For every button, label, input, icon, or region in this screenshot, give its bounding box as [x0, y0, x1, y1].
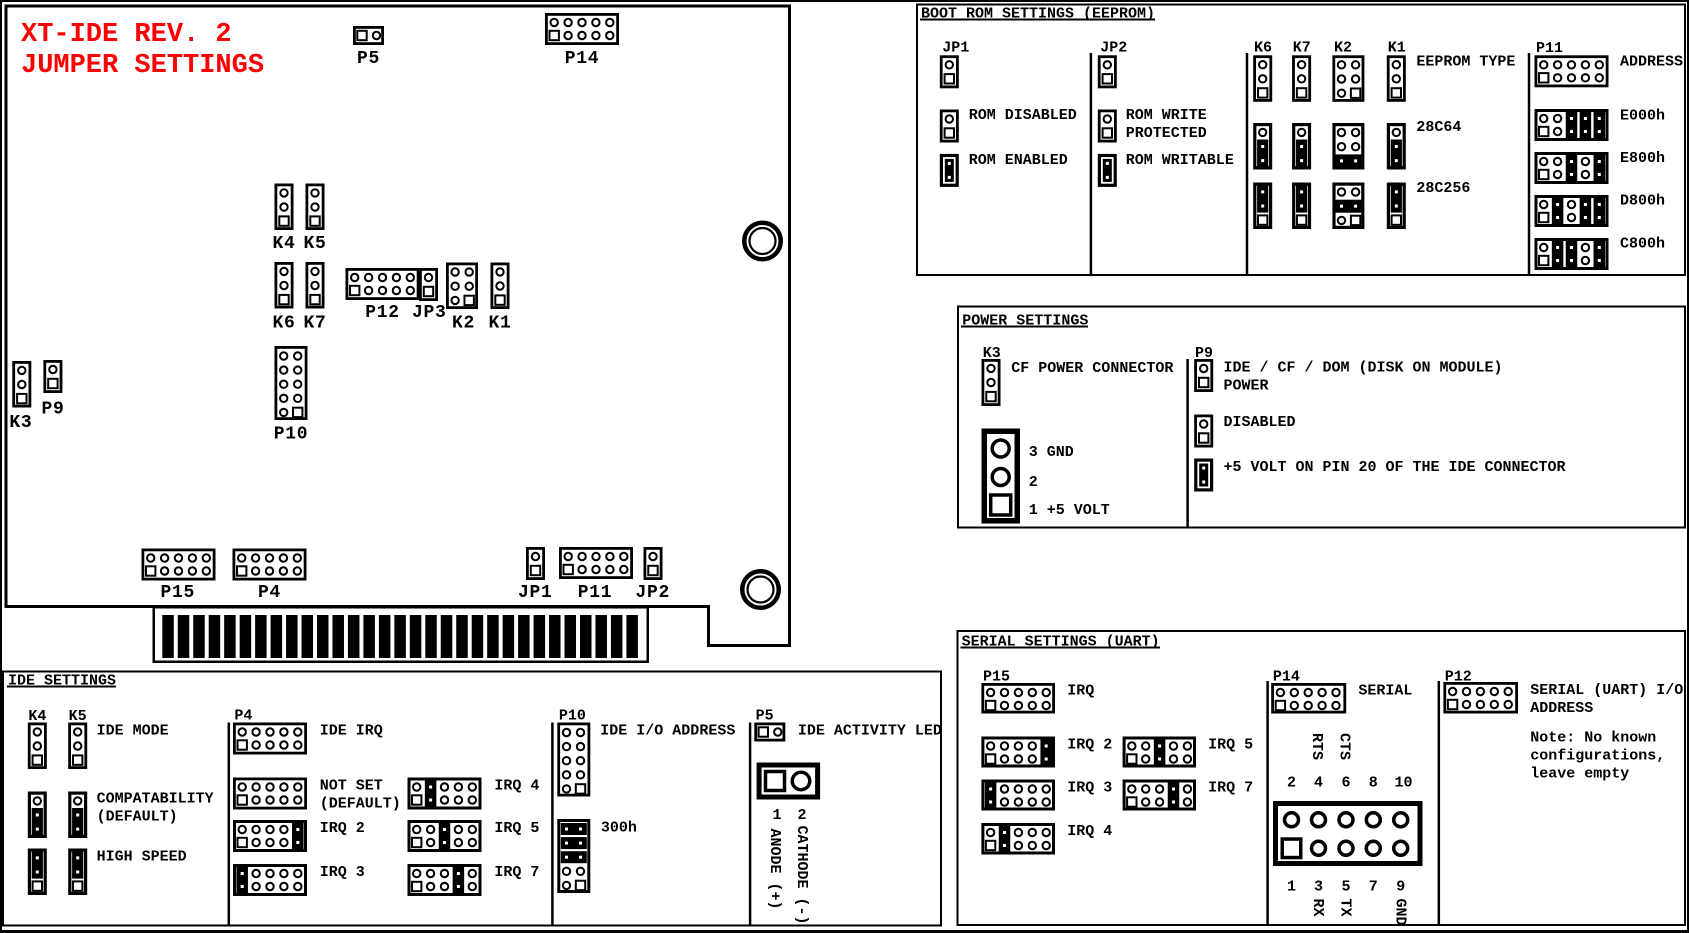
svg-text:D800h: D800h	[1620, 193, 1665, 210]
svg-text:3: 3	[1314, 879, 1323, 896]
svg-text:+5 VOLT ON PIN 20 OF THE IDE C: +5 VOLT ON PIN 20 OF THE IDE CONNECTOR	[1224, 459, 1566, 476]
svg-text:4: 4	[1314, 775, 1323, 792]
svg-text:C800h: C800h	[1620, 236, 1665, 253]
svg-text:IDE I/O ADDRESS: IDE I/O ADDRESS	[600, 723, 735, 740]
svg-text:JP1: JP1	[518, 583, 553, 603]
svg-text:SERIAL: SERIAL	[1358, 683, 1412, 700]
svg-text:XT-IDE REV. 2: XT-IDE REV. 2	[21, 20, 232, 50]
svg-text:8: 8	[1369, 775, 1378, 792]
svg-text:P12: P12	[365, 303, 400, 323]
svg-text:9: 9	[1396, 879, 1405, 896]
svg-text:ROM WRITE: ROM WRITE	[1126, 107, 1207, 124]
svg-text:P15: P15	[160, 583, 195, 603]
svg-text:CATHODE (-): CATHODE (-)	[793, 826, 810, 925]
svg-text:leave empty: leave empty	[1530, 765, 1629, 782]
svg-text:IRQ 5: IRQ 5	[1208, 737, 1253, 754]
svg-text:IRQ 3: IRQ 3	[320, 864, 365, 881]
svg-text:(DEFAULT): (DEFAULT)	[97, 809, 178, 826]
svg-text:IRQ 7: IRQ 7	[1208, 780, 1253, 797]
svg-text:JP2: JP2	[1100, 39, 1127, 56]
svg-text:configurations,: configurations,	[1530, 747, 1665, 764]
svg-text:SERIAL (UART) I/O: SERIAL (UART) I/O	[1530, 682, 1683, 699]
svg-text:JP2: JP2	[635, 583, 670, 603]
svg-text:2: 2	[1029, 474, 1038, 491]
svg-text:P15: P15	[983, 669, 1010, 686]
svg-text:K7: K7	[1293, 39, 1311, 56]
svg-text:1 +5 VOLT: 1 +5 VOLT	[1029, 502, 1110, 519]
svg-text:P11: P11	[578, 583, 613, 603]
svg-text:IRQ 2: IRQ 2	[320, 820, 365, 837]
svg-text:E800h: E800h	[1620, 150, 1665, 167]
svg-text:P14: P14	[1273, 669, 1300, 686]
svg-text:IRQ 4: IRQ 4	[494, 778, 539, 795]
svg-text:ROM DISABLED: ROM DISABLED	[969, 107, 1077, 124]
svg-text:IRQ 3: IRQ 3	[1067, 780, 1112, 797]
svg-text:ROM ENABLED: ROM ENABLED	[969, 152, 1068, 169]
svg-text:IRQ 5: IRQ 5	[494, 820, 539, 837]
svg-text:PROTECTED: PROTECTED	[1126, 125, 1207, 142]
svg-text:IDE MODE: IDE MODE	[97, 723, 169, 740]
svg-text:K7: K7	[303, 314, 326, 334]
svg-text:K5: K5	[303, 234, 326, 254]
svg-text:GND: GND	[1392, 899, 1409, 926]
svg-text:7: 7	[1369, 879, 1378, 896]
svg-text:JP3: JP3	[412, 303, 447, 323]
svg-text:1: 1	[1287, 879, 1296, 896]
svg-text:10: 10	[1394, 775, 1412, 792]
svg-text:28C64: 28C64	[1416, 119, 1461, 136]
svg-text:RTS: RTS	[1308, 733, 1325, 760]
svg-text:ADDRESS: ADDRESS	[1530, 700, 1593, 717]
svg-text:IDE IRQ: IDE IRQ	[320, 723, 383, 740]
svg-text:JP1: JP1	[942, 39, 969, 56]
svg-text:IRQ 4: IRQ 4	[1067, 823, 1112, 840]
svg-text:E000h: E000h	[1620, 108, 1665, 125]
svg-text:3 GND: 3 GND	[1029, 444, 1074, 461]
svg-text:ROM WRITABLE: ROM WRITABLE	[1126, 152, 1234, 169]
svg-text:K6: K6	[272, 314, 295, 334]
svg-text:P4: P4	[234, 708, 252, 725]
svg-text:NOT SET: NOT SET	[320, 778, 383, 795]
svg-text:CTS: CTS	[1336, 733, 1353, 760]
svg-text:TX: TX	[1337, 899, 1354, 917]
svg-text:IDE / CF / DOM (DISK ON MODULE: IDE / CF / DOM (DISK ON MODULE)	[1224, 360, 1503, 377]
svg-text:2: 2	[797, 807, 806, 824]
svg-text:CF POWER CONNECTOR: CF POWER CONNECTOR	[1011, 360, 1173, 377]
svg-text:K4: K4	[272, 234, 295, 254]
svg-text:P11: P11	[1536, 40, 1563, 57]
svg-text:K2: K2	[1334, 39, 1352, 56]
svg-text:COMPATABILITY: COMPATABILITY	[97, 791, 214, 808]
svg-text:IRQ 2: IRQ 2	[1067, 737, 1112, 754]
svg-text:2: 2	[1287, 775, 1296, 792]
svg-text:K4: K4	[28, 708, 46, 725]
svg-text:HIGH SPEED: HIGH SPEED	[97, 849, 187, 866]
svg-text:RX: RX	[1309, 899, 1326, 917]
svg-text:P4: P4	[258, 583, 281, 603]
svg-text:ANODE (+): ANODE (+)	[766, 829, 783, 910]
svg-text:(DEFAULT): (DEFAULT)	[320, 796, 401, 813]
svg-text:28C256: 28C256	[1416, 180, 1470, 197]
svg-text:P9: P9	[41, 399, 64, 419]
svg-text:P10: P10	[274, 425, 309, 445]
svg-text:EEPROM TYPE: EEPROM TYPE	[1416, 53, 1515, 70]
svg-text:300h: 300h	[601, 820, 637, 837]
svg-text:K3: K3	[9, 413, 32, 433]
svg-text:DISABLED: DISABLED	[1224, 414, 1296, 431]
svg-text:ADDRESS: ADDRESS	[1620, 53, 1683, 70]
svg-text:Note: No known: Note: No known	[1530, 729, 1656, 746]
svg-text:IDE ACTIVITY LED: IDE ACTIVITY LED	[798, 723, 942, 740]
svg-text:P5: P5	[357, 49, 380, 69]
svg-text:K5: K5	[69, 708, 87, 725]
svg-text:K2: K2	[452, 314, 475, 334]
svg-text:P10: P10	[559, 708, 586, 725]
svg-text:K1: K1	[1388, 39, 1406, 56]
svg-text:P5: P5	[756, 708, 774, 725]
svg-text:P14: P14	[565, 49, 600, 69]
svg-text:POWER: POWER	[1224, 378, 1269, 395]
svg-text:IRQ: IRQ	[1067, 683, 1094, 700]
svg-text:1: 1	[772, 807, 781, 824]
svg-text:JUMPER SETTINGS: JUMPER SETTINGS	[21, 51, 264, 81]
svg-text:K1: K1	[488, 314, 511, 334]
svg-text:5: 5	[1341, 879, 1350, 896]
svg-text:IRQ 7: IRQ 7	[494, 864, 539, 881]
svg-text:K6: K6	[1254, 39, 1272, 56]
svg-text:6: 6	[1341, 775, 1350, 792]
